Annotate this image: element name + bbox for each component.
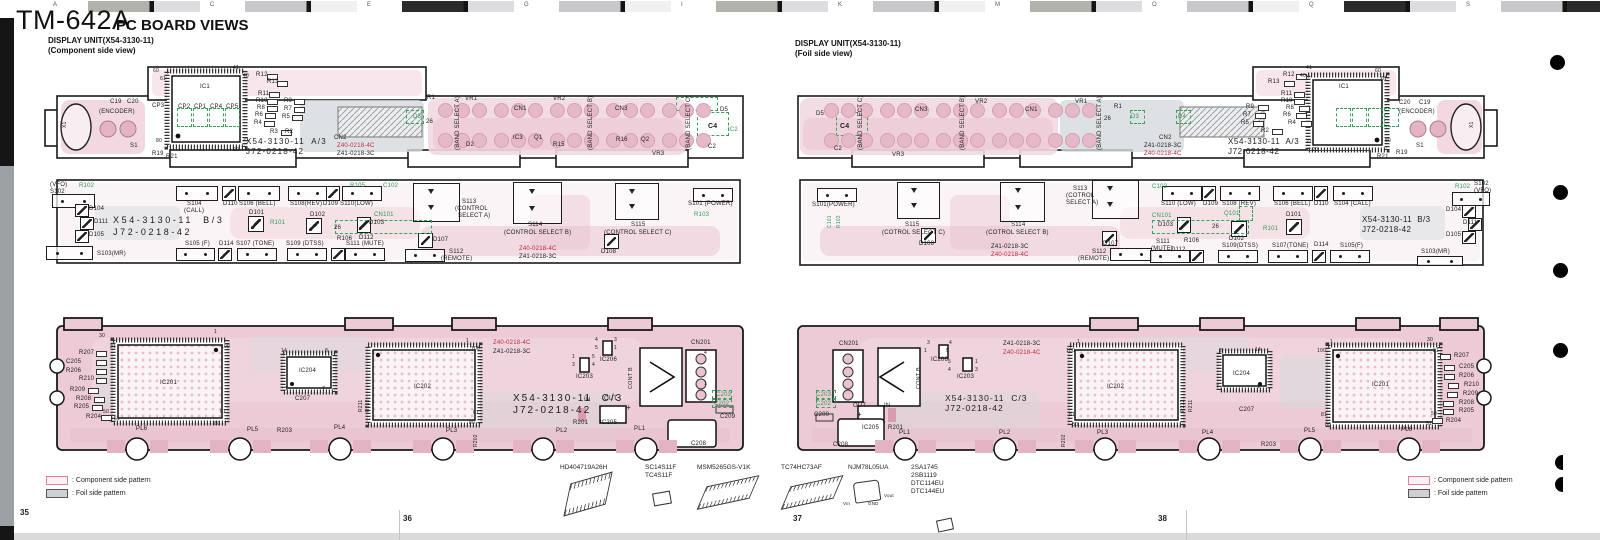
solder-pad bbox=[992, 133, 1007, 148]
resistor-symbol bbox=[1301, 121, 1312, 127]
pl-pad bbox=[253, 440, 271, 453]
pcb-ref-s103-mr: S103(MR) bbox=[1421, 249, 1450, 255]
switch-symbol bbox=[1218, 250, 1258, 263]
pcb-ref-r103: R103 bbox=[837, 215, 842, 228]
pcb-ref-q101: Q101 bbox=[1224, 211, 1239, 217]
pcb-ref-band-select-c: (BAND SELECT C) bbox=[686, 95, 692, 150]
pcb-ref-cn3: CN3 bbox=[615, 106, 628, 112]
switch-symbol bbox=[693, 188, 733, 202]
pcb-ref-40: 40 bbox=[1300, 74, 1306, 79]
pcb-ref-51: 51 bbox=[1426, 422, 1432, 427]
pcb-ref-cp4: CP4 bbox=[210, 104, 222, 110]
pl-pad bbox=[975, 440, 993, 453]
pcb-ref-d107: D107 bbox=[433, 237, 448, 243]
pcb-ref-cotrol-select-c: (COTROL SELECT C) bbox=[882, 230, 945, 236]
pcb-ref-ic3: IC3 bbox=[513, 135, 523, 141]
pcb-ref-r208: R208 bbox=[76, 396, 91, 402]
pcb-ref-r2: R2 bbox=[1261, 128, 1269, 134]
pcb-ref-z41-0218-3c: Z41-0218-3C bbox=[337, 151, 375, 157]
pcb-ref-z41-0218-3c: Z41-0218-3C bbox=[1003, 341, 1041, 347]
legend-foil-label: : Foil side pattern bbox=[1434, 490, 1488, 497]
pcb-ref-pl3: PL3 bbox=[1097, 430, 1108, 436]
pcb-ref-out: OUT bbox=[853, 403, 866, 409]
pcb-ref-d108: D108 bbox=[601, 249, 616, 255]
switch-symbol bbox=[1220, 186, 1260, 201]
pcb-ref-ic1: IC1 bbox=[1339, 84, 1349, 90]
pcb-ref-r2: R2 bbox=[285, 129, 293, 135]
switch-symbol bbox=[176, 186, 218, 201]
pcb-ref-band-select-b: (BAND SELECT B) bbox=[960, 96, 966, 150]
resistor-symbol bbox=[1296, 113, 1307, 119]
pcb-ref-j72-0218-42: J72-0218-42 bbox=[945, 404, 1004, 413]
pcb-ref-x1: X1 bbox=[1470, 121, 1475, 128]
package-name: SC14S11F bbox=[645, 464, 676, 472]
package-name: TC4S11F bbox=[645, 472, 676, 480]
pcb-ref-26: 26 bbox=[426, 119, 433, 125]
legend-foil-label: : Foil side pattern bbox=[72, 490, 126, 497]
pcb-ref-r5: R5 bbox=[1241, 120, 1249, 126]
solder-pad bbox=[970, 133, 985, 148]
switch-grid-symbol bbox=[1000, 182, 1045, 222]
pcb-ref-30: 30 bbox=[99, 334, 105, 339]
pcb-ref-r15: R15 bbox=[553, 142, 565, 148]
pcb-ref-z40-0218-4c: Z40-0218-4C bbox=[1144, 151, 1182, 157]
pl-pad bbox=[210, 440, 228, 453]
pcb-ref-s103-mr: S103(MR) bbox=[97, 251, 126, 257]
green-outline bbox=[1352, 108, 1367, 127]
pcb-ref-s101-power: S101(POWER) bbox=[812, 202, 855, 208]
solder-pad bbox=[936, 103, 951, 118]
pcb-ref-out: OUT bbox=[604, 396, 617, 402]
diode-symbol bbox=[1286, 219, 1302, 235]
pcb-ref-r1: R1 bbox=[1114, 104, 1122, 110]
pcb-ref-x54-3130-11-a-3: X54-3130-11 A/3 bbox=[1228, 138, 1299, 146]
pcb-ref-61: 61 bbox=[160, 77, 166, 82]
pcb-ref-r11: R11 bbox=[1281, 91, 1292, 97]
diode-symbol bbox=[1202, 186, 1216, 201]
pcb-ref-d108: D108 bbox=[919, 241, 934, 247]
pcb-ref-ic204: IC204 bbox=[299, 368, 316, 374]
pcb-ref-select-a: SELECT A) bbox=[458, 213, 490, 219]
diode-symbol bbox=[306, 218, 322, 234]
pcb-ref-c4: C4 bbox=[840, 123, 849, 130]
pcb-ref-r210: R210 bbox=[79, 376, 94, 382]
resistor-symbol bbox=[267, 106, 278, 112]
pcb-ref-r19: R19 bbox=[152, 151, 164, 157]
pcb-ref-vr1: VR1 bbox=[465, 96, 477, 102]
pcb-ref-r208: R208 bbox=[1459, 400, 1474, 406]
pcb-ref-band-select-a: (BAND SELECT A) bbox=[455, 96, 461, 150]
pl-pad bbox=[513, 440, 531, 453]
pcb-ref-40: 40 bbox=[243, 74, 249, 79]
green-outline bbox=[1384, 108, 1399, 127]
pcb-ref-r205: R205 bbox=[1459, 408, 1474, 414]
resistor-symbol bbox=[294, 107, 305, 113]
pcb-ref-cn101: CN101 bbox=[374, 212, 394, 218]
pcb-ref-80: 80 bbox=[1385, 139, 1391, 144]
pcb-ref-81: 81 bbox=[1321, 413, 1327, 418]
solder-pad bbox=[1009, 103, 1024, 118]
pcb-ref-ic206: IC206 bbox=[931, 357, 948, 363]
pcb-ref-c208: C208 bbox=[691, 441, 706, 447]
pl-pad bbox=[310, 440, 328, 453]
resistor-symbol bbox=[265, 113, 276, 119]
pl-pad bbox=[556, 440, 574, 453]
pcb-ref-7: 7 bbox=[322, 387, 325, 392]
pcb-ref-60: 60 bbox=[1375, 69, 1381, 74]
diode-symbol bbox=[1312, 250, 1326, 263]
pcb-ref-50: 50 bbox=[103, 410, 109, 415]
page-number: 37 bbox=[793, 514, 802, 523]
package-qfp: HD404719A26H bbox=[560, 464, 610, 509]
pcb-ref-100: 100 bbox=[1317, 349, 1326, 354]
pcb-ref-z40-0218-4c: Z40-0218-4C bbox=[991, 252, 1029, 258]
pcb-ref-z41-0218-3c: Z41-0218-3C bbox=[1144, 143, 1182, 149]
solder-pad bbox=[880, 133, 895, 148]
package-name: MSM5265GS-V1K bbox=[697, 464, 755, 472]
pcb-ref-4: 4 bbox=[595, 338, 598, 343]
pcb-ref-r13: R13 bbox=[1268, 79, 1280, 85]
switch-symbol bbox=[176, 248, 215, 261]
resistor-symbol bbox=[1284, 81, 1295, 87]
pcb-ref-d110: D110 bbox=[1314, 201, 1329, 207]
page-number: 35 bbox=[20, 508, 29, 517]
pcb-ref-d111: D111 bbox=[1463, 220, 1477, 226]
pl-pad bbox=[1179, 440, 1197, 453]
pl-pad bbox=[456, 440, 474, 453]
solder-pad bbox=[567, 103, 582, 118]
diode-symbol bbox=[331, 248, 345, 261]
resistor-symbol bbox=[94, 397, 105, 403]
pcb-ref-c2: C2 bbox=[708, 144, 716, 150]
diode-symbol bbox=[326, 186, 340, 201]
pcb-ref-4: 4 bbox=[949, 341, 952, 346]
pcb-ref-5: 5 bbox=[595, 346, 598, 351]
pcb-ref-r203: R203 bbox=[277, 428, 292, 434]
pcb-ref-d4: D4 bbox=[1178, 114, 1186, 120]
pcb-ref-r209: R209 bbox=[1463, 391, 1478, 397]
switch-grid-symbol bbox=[897, 182, 940, 219]
package-sot: SC14S11FTC4S11F bbox=[645, 464, 676, 505]
pcb-ref-1: 1 bbox=[572, 355, 575, 360]
pcb-ref-c4: C4 bbox=[708, 123, 717, 130]
resistor-symbol bbox=[292, 115, 303, 121]
pcb-ref-d103: D103 bbox=[1158, 222, 1173, 228]
pcb-ref-pl1: PL1 bbox=[899, 430, 910, 436]
pcb-ref-ic203: IC203 bbox=[957, 374, 974, 380]
pcb-ref-d105: D105 bbox=[89, 232, 104, 238]
pcb-ref-s104-call: S104 (CALL) bbox=[1334, 201, 1371, 207]
resistor-symbol bbox=[1253, 121, 1264, 127]
pcb-ref-41: 41 bbox=[233, 66, 239, 71]
pcb-ref-r11: R11 bbox=[258, 91, 269, 97]
pcb-ref-pl4: PL4 bbox=[334, 425, 345, 431]
solder-pad bbox=[662, 103, 677, 118]
resistor-symbol bbox=[1294, 99, 1305, 105]
pcb-ref-d109: D109 bbox=[323, 201, 338, 207]
pcb-ref-cn2: CN2 bbox=[1159, 135, 1172, 141]
solder-pad bbox=[1065, 133, 1080, 148]
pcb-ref-s111-mute: S111 (MUTE) bbox=[346, 241, 384, 247]
page-number: 38 bbox=[1158, 514, 1167, 523]
pcb-ref-c102: C102 bbox=[1152, 184, 1167, 190]
pcb-ref-30: 30 bbox=[1427, 338, 1433, 343]
solder-pad bbox=[936, 133, 951, 148]
pcb-ref-r7: R7 bbox=[1243, 112, 1251, 118]
pcb-ref-8: 8 bbox=[1220, 349, 1223, 354]
pl-pad bbox=[1118, 440, 1136, 453]
pcb-ref-d107: D107 bbox=[1103, 241, 1118, 247]
solder-pad bbox=[567, 133, 582, 148]
pl-pad bbox=[1323, 440, 1341, 453]
switch-grid-symbol bbox=[1092, 180, 1139, 219]
pcb-ref-d114: D114 bbox=[219, 241, 234, 247]
pcb-ref-80: 80 bbox=[1325, 423, 1331, 428]
pcb-ref-c207: C207 bbox=[1239, 407, 1254, 413]
pcb-ref-d112: D112 bbox=[1171, 247, 1186, 253]
pcb-ref-1: 1 bbox=[285, 387, 288, 392]
pcb-ref-s101-power: S101 (POWER) bbox=[688, 201, 733, 207]
registration-dot-icon bbox=[1550, 55, 1565, 70]
pcb-ref-s107-tone: S107(TONE) bbox=[1272, 243, 1309, 249]
pcb-ref-1: 1 bbox=[975, 360, 978, 365]
switch-symbol bbox=[237, 248, 277, 261]
pcb-ref-r106: R106 bbox=[1184, 238, 1199, 244]
pcb-ref-remote: (REMOTE) bbox=[1078, 256, 1109, 262]
pcb-ref-d3: D3 bbox=[1131, 114, 1139, 120]
pcb-ref-r201: R201 bbox=[573, 420, 588, 426]
pcb-ref-20: 20 bbox=[1312, 148, 1318, 153]
package-sot2: 2SA17452SB1119DTC114EUDTC144EU bbox=[911, 464, 953, 531]
solder-pad bbox=[662, 133, 677, 148]
switch-symbol bbox=[345, 248, 385, 261]
resistor-symbol bbox=[1443, 401, 1454, 407]
pcb-ref-c205: C205 bbox=[66, 359, 81, 365]
pcb-ref-x54-3130-11-c-3: X54-3130-11 C/3 bbox=[945, 394, 1027, 403]
pcb-ref-r206: R206 bbox=[1459, 373, 1474, 379]
pcb-ref-remote: (REMOTE) bbox=[441, 256, 472, 262]
pl-pad bbox=[1422, 440, 1440, 453]
pcb-ref-80: 80 bbox=[156, 139, 162, 144]
pcb-ref-4: 4 bbox=[592, 363, 595, 368]
pcb-ref-z41-0218-3c: Z41-0218-3C bbox=[519, 254, 557, 260]
resistor-symbol bbox=[264, 121, 275, 127]
pcb-ref-60: 60 bbox=[153, 69, 159, 74]
pcb-ref-: + bbox=[626, 404, 631, 412]
pcb-ref-s106-bell: S106 (BELL) bbox=[1274, 201, 1311, 207]
pcb-ref-c19: C19 bbox=[110, 99, 122, 105]
pcb-ref-r9: R9 bbox=[284, 98, 292, 104]
pcb-ref-s106-bell: S106 (BELL) bbox=[239, 201, 276, 207]
package-name: 2SA1745 bbox=[911, 464, 953, 472]
solder-pad bbox=[1026, 133, 1041, 148]
pcb-ref-26: 26 bbox=[1104, 116, 1111, 122]
pcb-ref-vfo: (VFO) bbox=[50, 182, 67, 188]
resistor-symbol bbox=[1448, 383, 1459, 389]
pcb-ref-ic205: IC205 bbox=[600, 420, 617, 426]
package-name: NJM78L05UA bbox=[848, 464, 888, 472]
switch-symbol bbox=[1162, 186, 1202, 201]
pcb-ref-r207: R207 bbox=[1454, 353, 1469, 359]
pcb-ref-d103: D103 bbox=[369, 220, 384, 226]
solder-pad bbox=[841, 133, 856, 148]
pl-pad bbox=[1280, 440, 1298, 453]
registration-dot-icon bbox=[1553, 185, 1568, 200]
pl-pad bbox=[875, 440, 893, 453]
solder-pad bbox=[528, 103, 543, 118]
switch-symbol bbox=[1110, 248, 1152, 261]
pcb-ref-z40-0218-4c: Z40-0218-4C bbox=[1003, 350, 1041, 356]
resistor-symbol bbox=[1255, 113, 1266, 119]
pcb-ref-band-select-a: (BAND SELECT A) bbox=[1097, 96, 1103, 150]
pcb-ref-100: 100 bbox=[471, 347, 480, 352]
pcb-ref-r10: R10 bbox=[1281, 98, 1293, 104]
pcb-ref-pl1: PL1 bbox=[634, 426, 645, 432]
solder-pad bbox=[992, 103, 1007, 118]
pcb-ref-c20: C20 bbox=[127, 99, 139, 105]
pcb-ref-: + bbox=[857, 411, 862, 419]
pcb-ref-s1: S1 bbox=[130, 143, 138, 149]
pcb-ref-d105: D105 bbox=[1446, 232, 1461, 238]
pcb-ref-r203: R203 bbox=[1261, 442, 1276, 448]
pcb-ref-3: 3 bbox=[614, 338, 617, 343]
package-drawing-sot-icon bbox=[652, 491, 672, 507]
solder-pad bbox=[640, 103, 655, 118]
pcb-ref-s112: S112 bbox=[1092, 249, 1106, 255]
pcb-ref-s102: S102 bbox=[50, 189, 65, 195]
registration-halfdot-icon bbox=[1555, 455, 1563, 470]
pcb-ref-s102: S102 bbox=[1474, 181, 1489, 187]
pcb-ref-s105-f: S105(F) bbox=[1340, 243, 1363, 249]
pcb-ref-8: 8 bbox=[325, 349, 328, 354]
resistor-symbol bbox=[269, 92, 280, 98]
pcb-ref-d2: D2 bbox=[466, 142, 474, 148]
pcb-ref-s115: S115 bbox=[905, 222, 919, 228]
pcb-ref-r101: R101 bbox=[270, 220, 285, 226]
pcb-ref-r8: R8 bbox=[257, 105, 265, 111]
pcb-ref-c207: C207 bbox=[295, 396, 310, 402]
pcb-ref-r16: R16 bbox=[616, 137, 628, 143]
pcb-ref-pl2: PL2 bbox=[999, 430, 1010, 436]
pl-pad bbox=[353, 440, 371, 453]
pcb-ref-vr2: VR2 bbox=[553, 96, 565, 102]
pcb-ref-cn201: CN201 bbox=[691, 340, 711, 346]
pcb-ref-r210: R210 bbox=[1464, 382, 1479, 388]
pcb-ref-s108-rev: S108 (REV) bbox=[1222, 201, 1256, 207]
resistor-symbol bbox=[1258, 105, 1269, 111]
package-sop: MSM5265GS-V1K bbox=[697, 464, 755, 503]
diode-symbol bbox=[75, 204, 89, 217]
pcb-ref-1: 1 bbox=[1330, 340, 1333, 345]
pcb-ref-d102: D102 bbox=[1229, 236, 1244, 242]
pcb-ref-z41-0218-3c: Z41-0218-3C bbox=[493, 349, 531, 355]
solder-pad bbox=[550, 103, 565, 118]
foil-pattern-swatch bbox=[46, 489, 68, 498]
switch-symbol bbox=[46, 246, 93, 260]
pcb-ref-r6: R6 bbox=[255, 112, 263, 118]
pcb-ref-cotrol-select-b: (COTROL SELECT B) bbox=[986, 230, 1049, 236]
pl-pad bbox=[413, 440, 431, 453]
pcb-ref-r103: R103 bbox=[694, 212, 709, 218]
pcb-ref-100: 100 bbox=[1066, 349, 1075, 354]
resistor-symbol bbox=[1444, 365, 1455, 371]
solder-pad bbox=[914, 133, 929, 148]
pcb-ref-c20: C20 bbox=[1399, 100, 1411, 106]
pcb-ref-r1: R1 bbox=[427, 95, 435, 101]
service-manual-page: ACEGIKMOQS TM-642A PC BOARD VIEWS DISPLA… bbox=[0, 0, 1600, 540]
board-c-left-outline bbox=[50, 318, 743, 460]
green-outline bbox=[177, 108, 192, 127]
pcb-ref-s115: S115 bbox=[631, 222, 645, 228]
pcb-ref-61: 61 bbox=[1381, 77, 1387, 82]
resistor-symbol bbox=[1447, 392, 1458, 398]
pcb-ref-in: IN bbox=[584, 397, 590, 403]
pl-pad bbox=[1075, 440, 1093, 453]
pcb-ref-r206: R206 bbox=[66, 368, 81, 374]
registration-dot-icon bbox=[1553, 343, 1568, 358]
pcb-ref-21: 21 bbox=[1306, 140, 1312, 145]
pcb-ref-d5: D5 bbox=[720, 107, 728, 113]
solder-pad bbox=[1048, 133, 1063, 148]
pl-pad bbox=[1379, 440, 1397, 453]
pcb-ref-ic2: IC2 bbox=[728, 127, 738, 133]
package-drawing-to92-icon bbox=[853, 479, 882, 503]
resistor-symbol bbox=[267, 99, 278, 105]
pcb-ref-d102: D102 bbox=[310, 212, 325, 218]
pcb-ref-z40-0218-4c: Z40-0218-4C bbox=[519, 246, 557, 252]
package-name: TC74HC73AF bbox=[781, 464, 839, 472]
pcb-ref-ic1: IC1 bbox=[200, 84, 210, 90]
pcb-ref-pl6: PL6 bbox=[136, 426, 147, 432]
pcb-ref-r7: R7 bbox=[284, 106, 292, 112]
resistor-symbol bbox=[1272, 129, 1283, 135]
pcb-ref-c203: C203 bbox=[716, 392, 731, 398]
pcb-ref-pl2: PL2 bbox=[556, 428, 567, 434]
pcb-ref-d104: D104 bbox=[1446, 207, 1461, 213]
pcb-ref-3: 3 bbox=[975, 368, 978, 373]
pcb-ref-cn1: CN1 bbox=[1025, 107, 1038, 113]
resistor-symbol bbox=[1444, 374, 1455, 380]
pcb-ref-cp2: CP2 bbox=[178, 104, 190, 110]
green-outline bbox=[1368, 108, 1383, 127]
resistor-symbol bbox=[88, 388, 99, 394]
switch-grid-symbol bbox=[615, 183, 659, 220]
pcb-ref-r102: R102 bbox=[79, 183, 94, 189]
pl-pad bbox=[659, 440, 677, 453]
pcb-ref-20: 20 bbox=[233, 148, 239, 153]
pcb-ref-cont-b: CONT B bbox=[629, 367, 635, 389]
component-pattern-swatch bbox=[1408, 476, 1430, 485]
pcb-ref-vr3: VR3 bbox=[652, 151, 664, 157]
pcb-ref-r3: R3 bbox=[270, 129, 278, 135]
pcb-ref-j72-0218-42: J72-0218-42 bbox=[513, 406, 591, 417]
solder-pad bbox=[1048, 103, 1063, 118]
pcb-ref-control: (CONTROL bbox=[455, 206, 488, 212]
resistor-symbol bbox=[96, 369, 107, 375]
pcb-ref-x54-3130-11-a-3: X54-3130-11 A/3 bbox=[246, 138, 327, 146]
pcb-ref-c205: C205 bbox=[1459, 364, 1474, 370]
pcb-ref-r212: R212 bbox=[1181, 399, 1186, 412]
pcb-ref-r209: R209 bbox=[70, 387, 85, 393]
pcb-ref-mute: (MUTE) bbox=[1151, 246, 1173, 252]
pcb-ref-cn2: CN2 bbox=[334, 135, 347, 141]
pcb-ref-s104: S104 bbox=[187, 201, 202, 207]
diode-symbol bbox=[1190, 250, 1204, 263]
pcb-ref-c19: C19 bbox=[1419, 100, 1431, 106]
pcb-ref-r21: R21 bbox=[166, 154, 178, 160]
pcb-ref-d3: D3 bbox=[413, 114, 421, 120]
pcb-ref-s114: S114 bbox=[528, 222, 542, 228]
